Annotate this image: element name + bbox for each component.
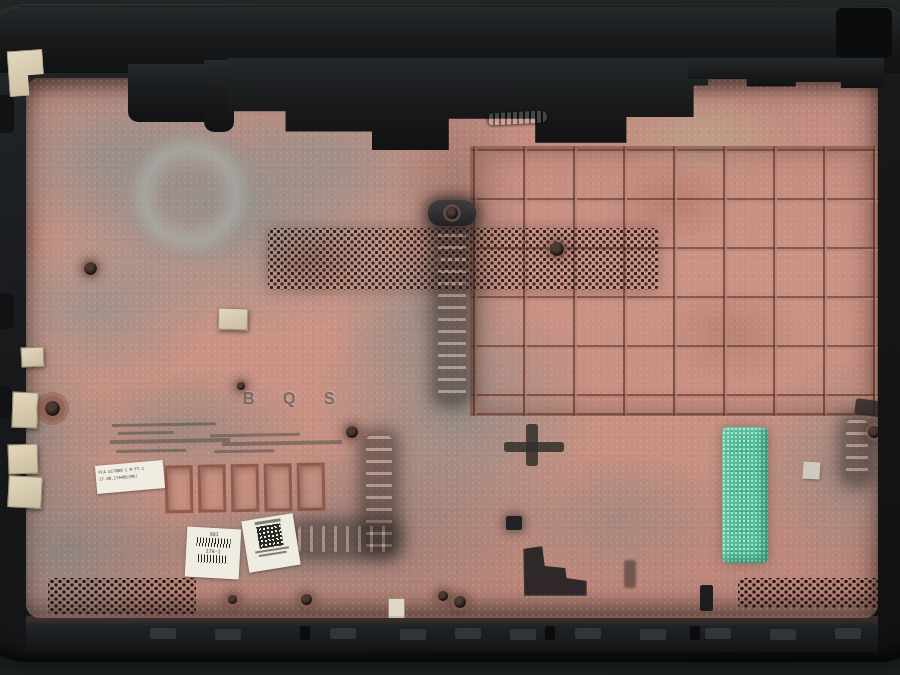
- rim-tab: [705, 628, 731, 639]
- barcode-stripe: [196, 537, 230, 548]
- screw-hole: [228, 595, 237, 604]
- rim-slot: [545, 626, 555, 640]
- molded-regulatory-text: [110, 416, 351, 460]
- pocket-square: [165, 465, 194, 513]
- pocket-square: [198, 464, 227, 512]
- rim-tab: [510, 629, 536, 640]
- rim-tab: [330, 628, 356, 639]
- pocket-square: [297, 463, 326, 511]
- case-interior-surface: B Q S: [26, 78, 878, 618]
- pca-label: PCA 517888 C M FT-1 17.08.17A4B5(M6): [95, 460, 165, 494]
- screw-hole: [84, 262, 97, 275]
- rim-slot: [300, 626, 310, 640]
- screw-hole: [550, 242, 564, 256]
- rim-tab: [400, 629, 426, 640]
- pocket-square: [231, 464, 260, 512]
- speaker-grille-right: [738, 578, 878, 608]
- left-edge-tab: [0, 95, 14, 133]
- screw-hole: [237, 382, 245, 390]
- screw-hole: [454, 596, 466, 608]
- hinge-notch: [836, 8, 892, 58]
- screw-hole: [301, 594, 312, 605]
- dark-tab: [700, 585, 713, 611]
- black-square-fixture: [506, 516, 522, 530]
- screw-hole-flower-boss: [45, 401, 60, 416]
- soot-channel-horizontal: [298, 526, 394, 552]
- rim-tab: [640, 629, 666, 640]
- rim-tab: [835, 628, 861, 639]
- screw-hole: [438, 591, 448, 601]
- foam-pad: [722, 427, 768, 563]
- pocket-square: [264, 463, 293, 511]
- screw-hole-channel-top: [446, 207, 458, 219]
- standoff-bracket: [7, 443, 38, 474]
- cable-channel-vertical: [438, 210, 466, 400]
- speaker-grille-left: [48, 578, 196, 614]
- standoff-bracket: [20, 346, 44, 367]
- tan-bracket: [218, 307, 249, 330]
- battery-pocket-squares: [165, 463, 326, 514]
- screw-hole: [346, 426, 358, 438]
- white-square-pad: [802, 461, 820, 479]
- standoff-bracket: [11, 392, 38, 429]
- screw-hole: [868, 426, 878, 438]
- photo-canvas: B Q S: [0, 0, 900, 675]
- embossed-code: B Q S: [243, 390, 347, 408]
- rim-slot: [690, 626, 700, 640]
- soot-mark: [624, 560, 636, 588]
- rim-tab: [770, 629, 796, 640]
- rim-tab: [575, 628, 601, 639]
- rim-tab: [215, 629, 241, 640]
- fan-dust-ring: [115, 125, 265, 265]
- qr-label: [241, 513, 300, 572]
- white-tab: [388, 598, 405, 618]
- left-edge-tab: [0, 386, 12, 418]
- serial-barcode-label: X01 17A-1: [185, 527, 242, 580]
- rim-tab: [150, 628, 176, 639]
- standoff-bracket: [7, 475, 43, 509]
- ribbed-fixture-right: [846, 420, 868, 480]
- barcode-stripe: [197, 554, 227, 564]
- bracket-cross-fixture: [526, 424, 538, 466]
- qr-code: [256, 523, 283, 548]
- left-edge-tab: [0, 293, 14, 329]
- rim-tab: [455, 628, 481, 639]
